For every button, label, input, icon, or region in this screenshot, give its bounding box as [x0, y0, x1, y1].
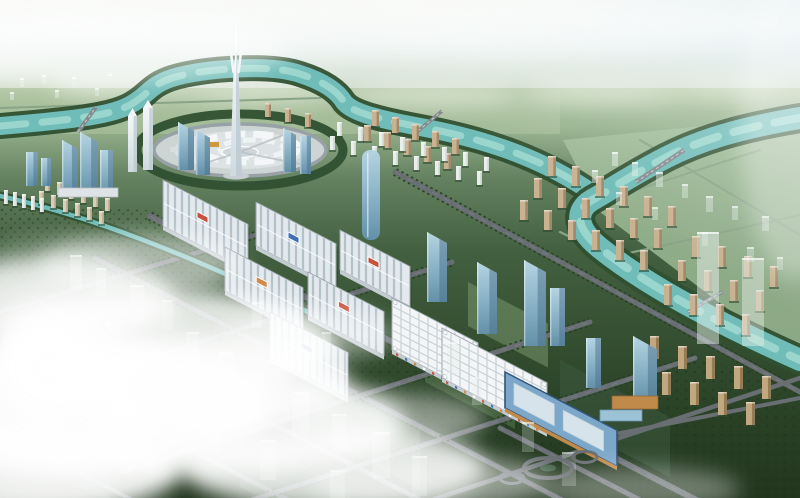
- cloud: [225, 309, 395, 361]
- aerial-city-masterplan-rendering: [0, 0, 800, 498]
- cloud: [305, 394, 485, 446]
- scene-canvas: [0, 0, 800, 498]
